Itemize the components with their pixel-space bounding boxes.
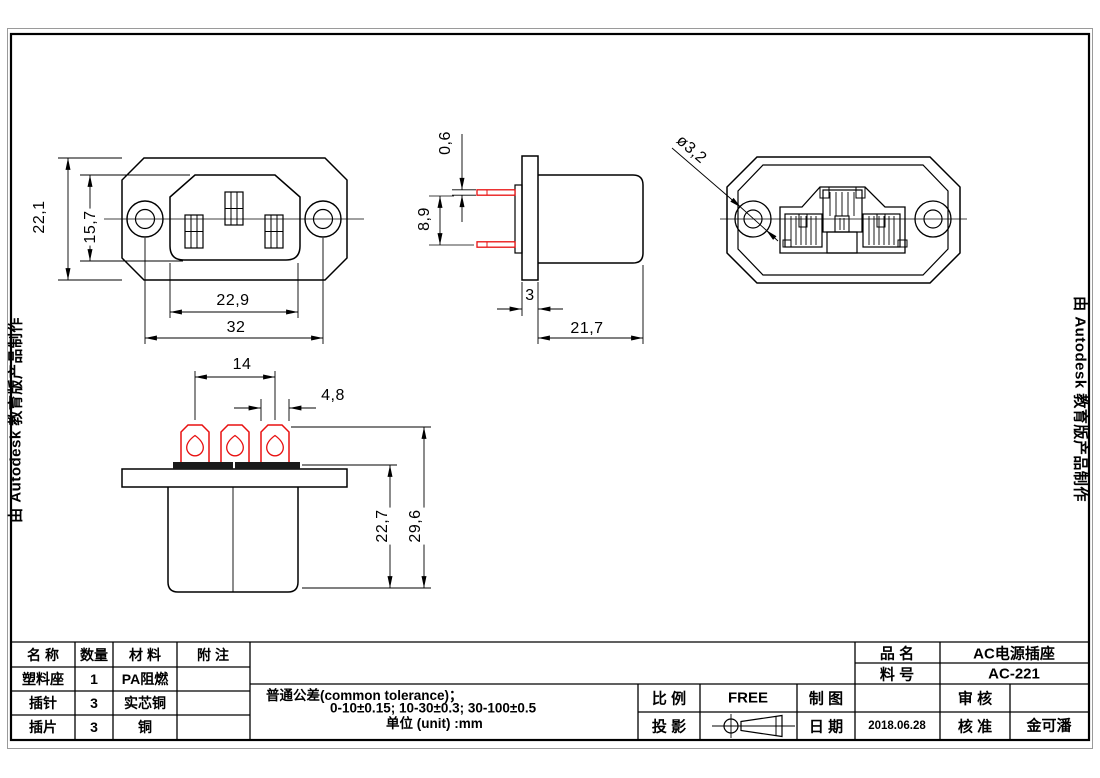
bom-row-material: PA阻燃 — [122, 669, 168, 689]
drawing-canvas — [0, 0, 1100, 778]
dim-mounting-hole-spacing: 32 — [227, 319, 246, 337]
approve-label: 核 准 — [958, 716, 992, 737]
watermark-right: 由 Autodesk 教育版产品制作 — [1071, 296, 1092, 502]
drawn-by-label: 制 图 — [809, 688, 843, 709]
scale-value: FREE — [728, 690, 768, 707]
date-label: 日 期 — [809, 716, 843, 737]
dim-pin-spacing: 8,9 — [416, 205, 434, 233]
projection-label: 投 影 — [652, 716, 686, 737]
front-view — [58, 158, 364, 344]
dim-terminal-spacing: 14 — [233, 356, 252, 374]
date-value: 2018.06.28 — [868, 720, 926, 732]
bom-row-qty: 1 — [90, 671, 98, 687]
drawing-sheet: 由 Autodesk 教育版产品制作 由 Autodesk 教育版产品制作 22… — [0, 0, 1100, 778]
drawing-frame — [8, 29, 1093, 749]
bom-header-note: 附 注 — [197, 645, 229, 665]
scale-label: 比 例 — [652, 688, 686, 709]
dim-socket-opening-height: 15,7 — [82, 208, 100, 245]
bom-row-material: 铜 — [138, 717, 152, 737]
bom-row-name: 插片 — [29, 717, 57, 737]
dim-flange-thickness: 3 — [525, 287, 534, 305]
product-name-value: AC电源插座 — [973, 643, 1055, 664]
dim-socket-opening-width: 22,9 — [216, 292, 249, 310]
product-name-label: 品 名 — [880, 643, 914, 664]
part-no-label: 料 号 — [880, 664, 914, 685]
title-block-grid — [11, 642, 1089, 740]
part-no-value: AC-221 — [988, 666, 1040, 683]
approve-value: 金可潘 — [1026, 715, 1071, 736]
bom-row-name: 插针 — [29, 693, 57, 713]
dim-terminal-width: 4,8 — [321, 387, 345, 405]
bom-row-qty: 3 — [90, 719, 98, 735]
bom-row-material: 实芯铜 — [124, 693, 166, 713]
dim-overall-depth: 29,6 — [407, 507, 425, 544]
bom-header-qty: 数量 — [80, 645, 108, 665]
bom-row-qty: 3 — [90, 695, 98, 711]
dim-pin-thickness: 0,6 — [437, 129, 455, 157]
watermark-left: 由 Autodesk 教育版产品制作 — [5, 317, 26, 523]
dim-flange-to-body-height: 22,7 — [374, 507, 392, 544]
projection-symbol-icon — [712, 714, 795, 738]
bottom-view — [122, 371, 431, 592]
bom-row-name: 塑料座 — [22, 669, 64, 689]
dim-body-depth: 21,7 — [570, 320, 603, 338]
bom-header-name: 名 称 — [27, 645, 59, 665]
tolerance-note-line3: 单位 (unit) :mm — [386, 712, 483, 732]
rear-view — [672, 148, 967, 283]
bom-header-material: 材 料 — [129, 645, 161, 665]
review-label: 审 核 — [958, 688, 992, 709]
dim-overall-height: 22,1 — [31, 198, 49, 235]
side-view — [429, 134, 643, 344]
